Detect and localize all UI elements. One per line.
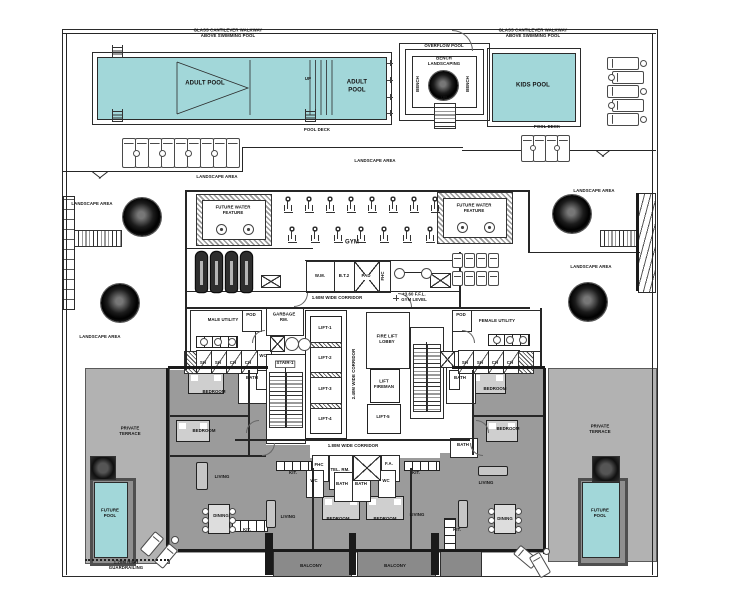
dimension-tick <box>387 77 393 83</box>
treadmill-icon <box>196 252 207 292</box>
dimension-tick <box>387 60 393 66</box>
tree-icon <box>569 283 607 321</box>
stair-flight <box>286 372 303 428</box>
deck-edge <box>242 147 463 148</box>
chair <box>515 508 522 515</box>
guardrail-note: 1.20M HIGH GUARDRAILING <box>109 561 143 572</box>
bedroom-label: BEDROOM <box>496 427 519 432</box>
side-table <box>133 150 140 157</box>
gym-bench <box>464 253 475 268</box>
treadmill-icon <box>211 252 222 292</box>
stair-flight <box>427 344 441 412</box>
room-divider <box>248 370 250 455</box>
side-table <box>171 536 179 544</box>
boundary-line-right <box>652 33 653 575</box>
dining-label: DINING <box>497 517 513 522</box>
garbage-label: GARBAGE RM. <box>273 313 296 324</box>
landscape-area-label: LANDSCAPE AREA <box>354 159 395 164</box>
party-wall <box>166 368 169 554</box>
chair <box>488 508 495 515</box>
level-marker <box>393 295 399 301</box>
treadmill-icon <box>226 252 237 292</box>
walkway-note-right: GLASS CANTILEVER WALKWAY ABOVE SWIMMING … <box>499 29 568 40</box>
side-table <box>608 102 615 109</box>
stall-label: CH <box>230 361 236 366</box>
sink-icon <box>200 338 208 346</box>
adult-pool-label-2: ADULT POOL <box>344 80 370 95</box>
fountain-icon <box>216 224 227 235</box>
side-table <box>640 88 647 95</box>
bedroom-label: BEDROOM <box>373 517 396 522</box>
sink-icon <box>506 336 514 344</box>
fireman-lift-label: LIFT FIREMAN <box>374 380 394 391</box>
chair <box>229 526 236 533</box>
fhc-label: FHC <box>314 463 323 468</box>
stall-label: CH <box>507 361 513 366</box>
stall-label: SH <box>215 361 221 366</box>
gym-equipment-icon <box>402 226 412 243</box>
gym-bench <box>488 271 499 286</box>
gym-wall <box>185 248 313 249</box>
wc-label: WC <box>310 479 317 484</box>
stall-label: SH <box>477 361 483 366</box>
wc-label: WC <box>259 354 266 359</box>
stair-flight <box>413 344 427 412</box>
gym-bench <box>476 271 487 286</box>
barbell-plate <box>421 268 432 279</box>
core-top-wall <box>185 307 530 309</box>
lounger <box>607 113 639 126</box>
gym-wall <box>528 190 530 253</box>
gym-bench <box>476 253 487 268</box>
residence-corridor-label: 1.80M WIDE CORRIDOR <box>328 444 379 449</box>
balcony-pier <box>265 533 273 575</box>
deck-edge <box>242 147 243 172</box>
room-divider <box>410 468 412 551</box>
gym-bench <box>452 253 463 268</box>
stall-label: CH <box>492 361 498 366</box>
water-feature-label-right: FUTURE WATER FEATURE <box>457 204 492 215</box>
gym-bench <box>488 253 499 268</box>
landscape-area-label: LANDSCAPE AREA <box>79 335 120 340</box>
bedroom-label: BEDROOM <box>483 387 506 392</box>
gym-corridor-label: 1.60M WIDE CORRIDOR <box>312 296 363 301</box>
kitchen-label: KIT. <box>412 471 420 476</box>
private-terrace-label: PRIVATE TERRACE <box>119 427 140 438</box>
terrace-tree-icon <box>90 456 116 480</box>
gym-equipment-icon <box>283 196 293 213</box>
chair <box>229 508 236 515</box>
locker-bank <box>518 351 534 374</box>
living-label: LIVING <box>215 475 230 480</box>
fountain-icon <box>457 222 468 233</box>
gym-equipment-icon <box>304 196 314 213</box>
party-wall <box>543 368 546 554</box>
shaft-divider <box>310 403 342 409</box>
pool-ladder-icon <box>305 109 316 122</box>
gym-wall <box>305 260 460 261</box>
lounger <box>612 71 644 84</box>
gym-bench <box>464 271 475 286</box>
stall-label: SH <box>200 361 206 366</box>
shaft-divider <box>310 342 342 348</box>
living-label: LIVING <box>479 481 494 486</box>
wm-label: W.M. <box>315 274 325 279</box>
bath-label: BATH <box>355 482 367 487</box>
pod-label: POD <box>246 313 256 318</box>
bench-label-right: BENCH <box>466 76 471 92</box>
sink-icon <box>493 336 501 344</box>
edge-planter-right <box>638 193 656 293</box>
side-table <box>640 60 647 67</box>
kitchen-label: KIT. <box>289 471 297 476</box>
deck-edge <box>63 171 243 172</box>
lounger <box>226 138 240 168</box>
lift3-label: LIFT-3 <box>318 387 331 392</box>
side-table <box>640 116 647 123</box>
core-corridor-label: 2.40M WIDE CORRIDOR <box>352 349 357 400</box>
gym-equipment-icon <box>388 196 398 213</box>
wash-basin <box>285 337 299 351</box>
fountain-icon <box>484 222 495 233</box>
planter-up-label: UP <box>441 96 447 101</box>
landscape-area-label: LANDSCAPE AREA <box>196 175 237 180</box>
balcony-label: BALCONY <box>300 564 322 569</box>
gym-label: GYM <box>345 239 359 247</box>
male-utility-label: MALE UTILITY <box>208 318 239 323</box>
balcony-label: BALCONY <box>384 564 406 569</box>
side-table <box>211 150 218 157</box>
corridor-wall <box>235 439 470 441</box>
room-divider <box>170 455 266 457</box>
water-feature-label-left: FUTURE WATER FEATURE <box>216 206 251 217</box>
gym-equipment-icon <box>379 226 389 243</box>
shaft-divider <box>310 372 342 378</box>
gym-equipment-icon <box>346 196 356 213</box>
steps-right <box>600 230 639 247</box>
living-label: LIVING <box>410 513 425 518</box>
pool-up-label: UP <box>305 77 311 82</box>
bedroom-label: BEDROOM <box>202 390 225 395</box>
pool-ladder-icon <box>112 109 123 122</box>
gym-equipment-icon <box>325 196 335 213</box>
floor-plan: GLASS CANTILEVER WALKWAY ABOVE SWIMMING … <box>0 0 734 597</box>
gym-equipment-icon <box>287 226 297 243</box>
female-utility-label: FEMALE UTILITY <box>479 319 515 324</box>
bedroom-label: BEDROOM <box>192 429 215 434</box>
sink-icon <box>214 338 222 346</box>
gym-equipment-icon <box>367 196 377 213</box>
chair <box>515 517 522 524</box>
chair <box>488 526 495 533</box>
edge-planter-left <box>63 196 75 310</box>
side-table <box>608 74 615 81</box>
stair-flight <box>269 372 286 428</box>
core-wall-right <box>540 308 542 368</box>
wash-basin <box>298 338 311 351</box>
side-table <box>554 145 560 151</box>
landscape-area-label: LANDSCAPE AREA <box>71 202 112 207</box>
gym-equipment-icon <box>310 226 320 243</box>
bench-label-left: BENCH <box>416 76 421 92</box>
room-divider <box>170 415 248 417</box>
side-table <box>530 145 536 151</box>
gym-equipment-icon <box>430 196 440 213</box>
kitchen-label: KIT. <box>453 528 461 533</box>
lounger <box>607 85 639 98</box>
lounger <box>612 99 644 112</box>
living-label: LIVING <box>281 515 296 520</box>
private-terrace-label: PRIVATE TERRACE <box>589 425 610 436</box>
lift5-label: LIFT-5 <box>376 415 389 420</box>
walkway-note-left: GLASS CANTILEVER WALKWAY ABOVE SWIMMING … <box>194 29 263 40</box>
lift1-label: LIFT-1 <box>318 326 331 331</box>
fountain-icon <box>243 224 254 235</box>
tel-room-label: TEL. RM. <box>330 468 349 473</box>
pool-deck-label-left: POOL DECK <box>304 128 330 133</box>
terrace-tree-icon <box>592 456 620 482</box>
stair-rail <box>285 368 286 428</box>
lift4-label: LIFT-4 <box>318 417 331 422</box>
landscape-area-label: LANDSCAPE AREA <box>570 265 611 270</box>
pool-deck-label-right: POOL DECK <box>534 125 560 130</box>
landscape-area-label: LANDSCAPE AREA <box>573 189 614 194</box>
side-table <box>159 150 166 157</box>
steps-left <box>74 230 122 247</box>
edge-planter-wall <box>636 193 639 291</box>
stair-rail <box>426 342 427 412</box>
water-feature-left <box>196 194 272 246</box>
tree-icon <box>553 195 591 233</box>
side-table <box>543 548 550 555</box>
equipment-mat <box>430 273 451 288</box>
lounger <box>607 57 639 70</box>
overflow-pool-label: OVERFLOW POOL <box>424 44 463 49</box>
tree-icon <box>101 284 139 322</box>
fhc-label: FHC <box>381 271 386 280</box>
gym-equipment-icon <box>333 226 343 243</box>
equipment-mat <box>261 275 281 288</box>
wc-label: WC <box>382 479 389 484</box>
fa-label: F.A. <box>385 462 393 467</box>
bt2-label: B.T.2 <box>339 274 349 279</box>
ffl-note: +3.60 F.F.L. GYM LEVEL <box>401 293 427 304</box>
sink-icon <box>228 338 236 346</box>
stall-label: SH <box>462 361 468 366</box>
service-shaft <box>270 336 285 352</box>
unit-bottom-wall <box>178 549 546 552</box>
dimension-tick <box>387 94 393 100</box>
chair <box>202 517 209 524</box>
balcony-pier <box>349 533 356 575</box>
gym-wall <box>185 190 530 192</box>
chair <box>488 517 495 524</box>
adult-pool-label: ADULT POOL <box>185 80 225 88</box>
chair <box>202 508 209 515</box>
pad-label: PAD <box>361 274 371 279</box>
dimension-tick <box>387 110 393 116</box>
core-wall-left <box>185 308 187 370</box>
gym-bench <box>452 271 463 286</box>
bath-label: BATH <box>454 376 466 381</box>
stair1-label: STAIR-1 <box>275 361 295 368</box>
gym-equipment-icon <box>409 196 419 213</box>
fire-lift-lobby-label: FIRE LIFT LOBBY <box>377 335 398 346</box>
pool-ladder-icon <box>112 45 123 58</box>
bench-landscaping-label: BENCH LANDSCAPING <box>428 57 460 68</box>
side-table <box>185 150 192 157</box>
bath-label: BATH <box>457 443 469 448</box>
chair <box>229 517 236 524</box>
dining-label: DINING <box>213 514 229 519</box>
water-feature-right <box>437 192 513 244</box>
kitchen-label: KIT. <box>243 528 251 533</box>
chair <box>202 526 209 533</box>
room-divider <box>474 415 544 417</box>
barbell-plate <box>394 268 405 279</box>
tree-icon <box>123 198 161 236</box>
treadmill-icon <box>241 252 252 292</box>
future-pool-label: FUTURE POOL <box>101 509 119 520</box>
gym-equipment-icon <box>425 226 435 243</box>
bath-label: BATH <box>336 482 348 487</box>
future-pool-label: FUTURE POOL <box>591 509 609 520</box>
stall-label: CH <box>245 361 251 366</box>
service-shaft <box>353 455 381 481</box>
planter-stair <box>434 103 456 129</box>
balcony-pier <box>431 533 439 575</box>
boundary-line-left <box>66 33 67 575</box>
bedroom-label: BEDROOM <box>326 517 349 522</box>
lift2-label: LIFT-2 <box>318 356 331 361</box>
kids-pool-label: KIDS POOL <box>516 82 550 90</box>
chair <box>515 526 522 533</box>
bath-label: BATH <box>246 376 258 381</box>
sink-icon <box>519 336 527 344</box>
pod-label: POD <box>456 313 466 318</box>
gym-wall <box>528 252 640 253</box>
